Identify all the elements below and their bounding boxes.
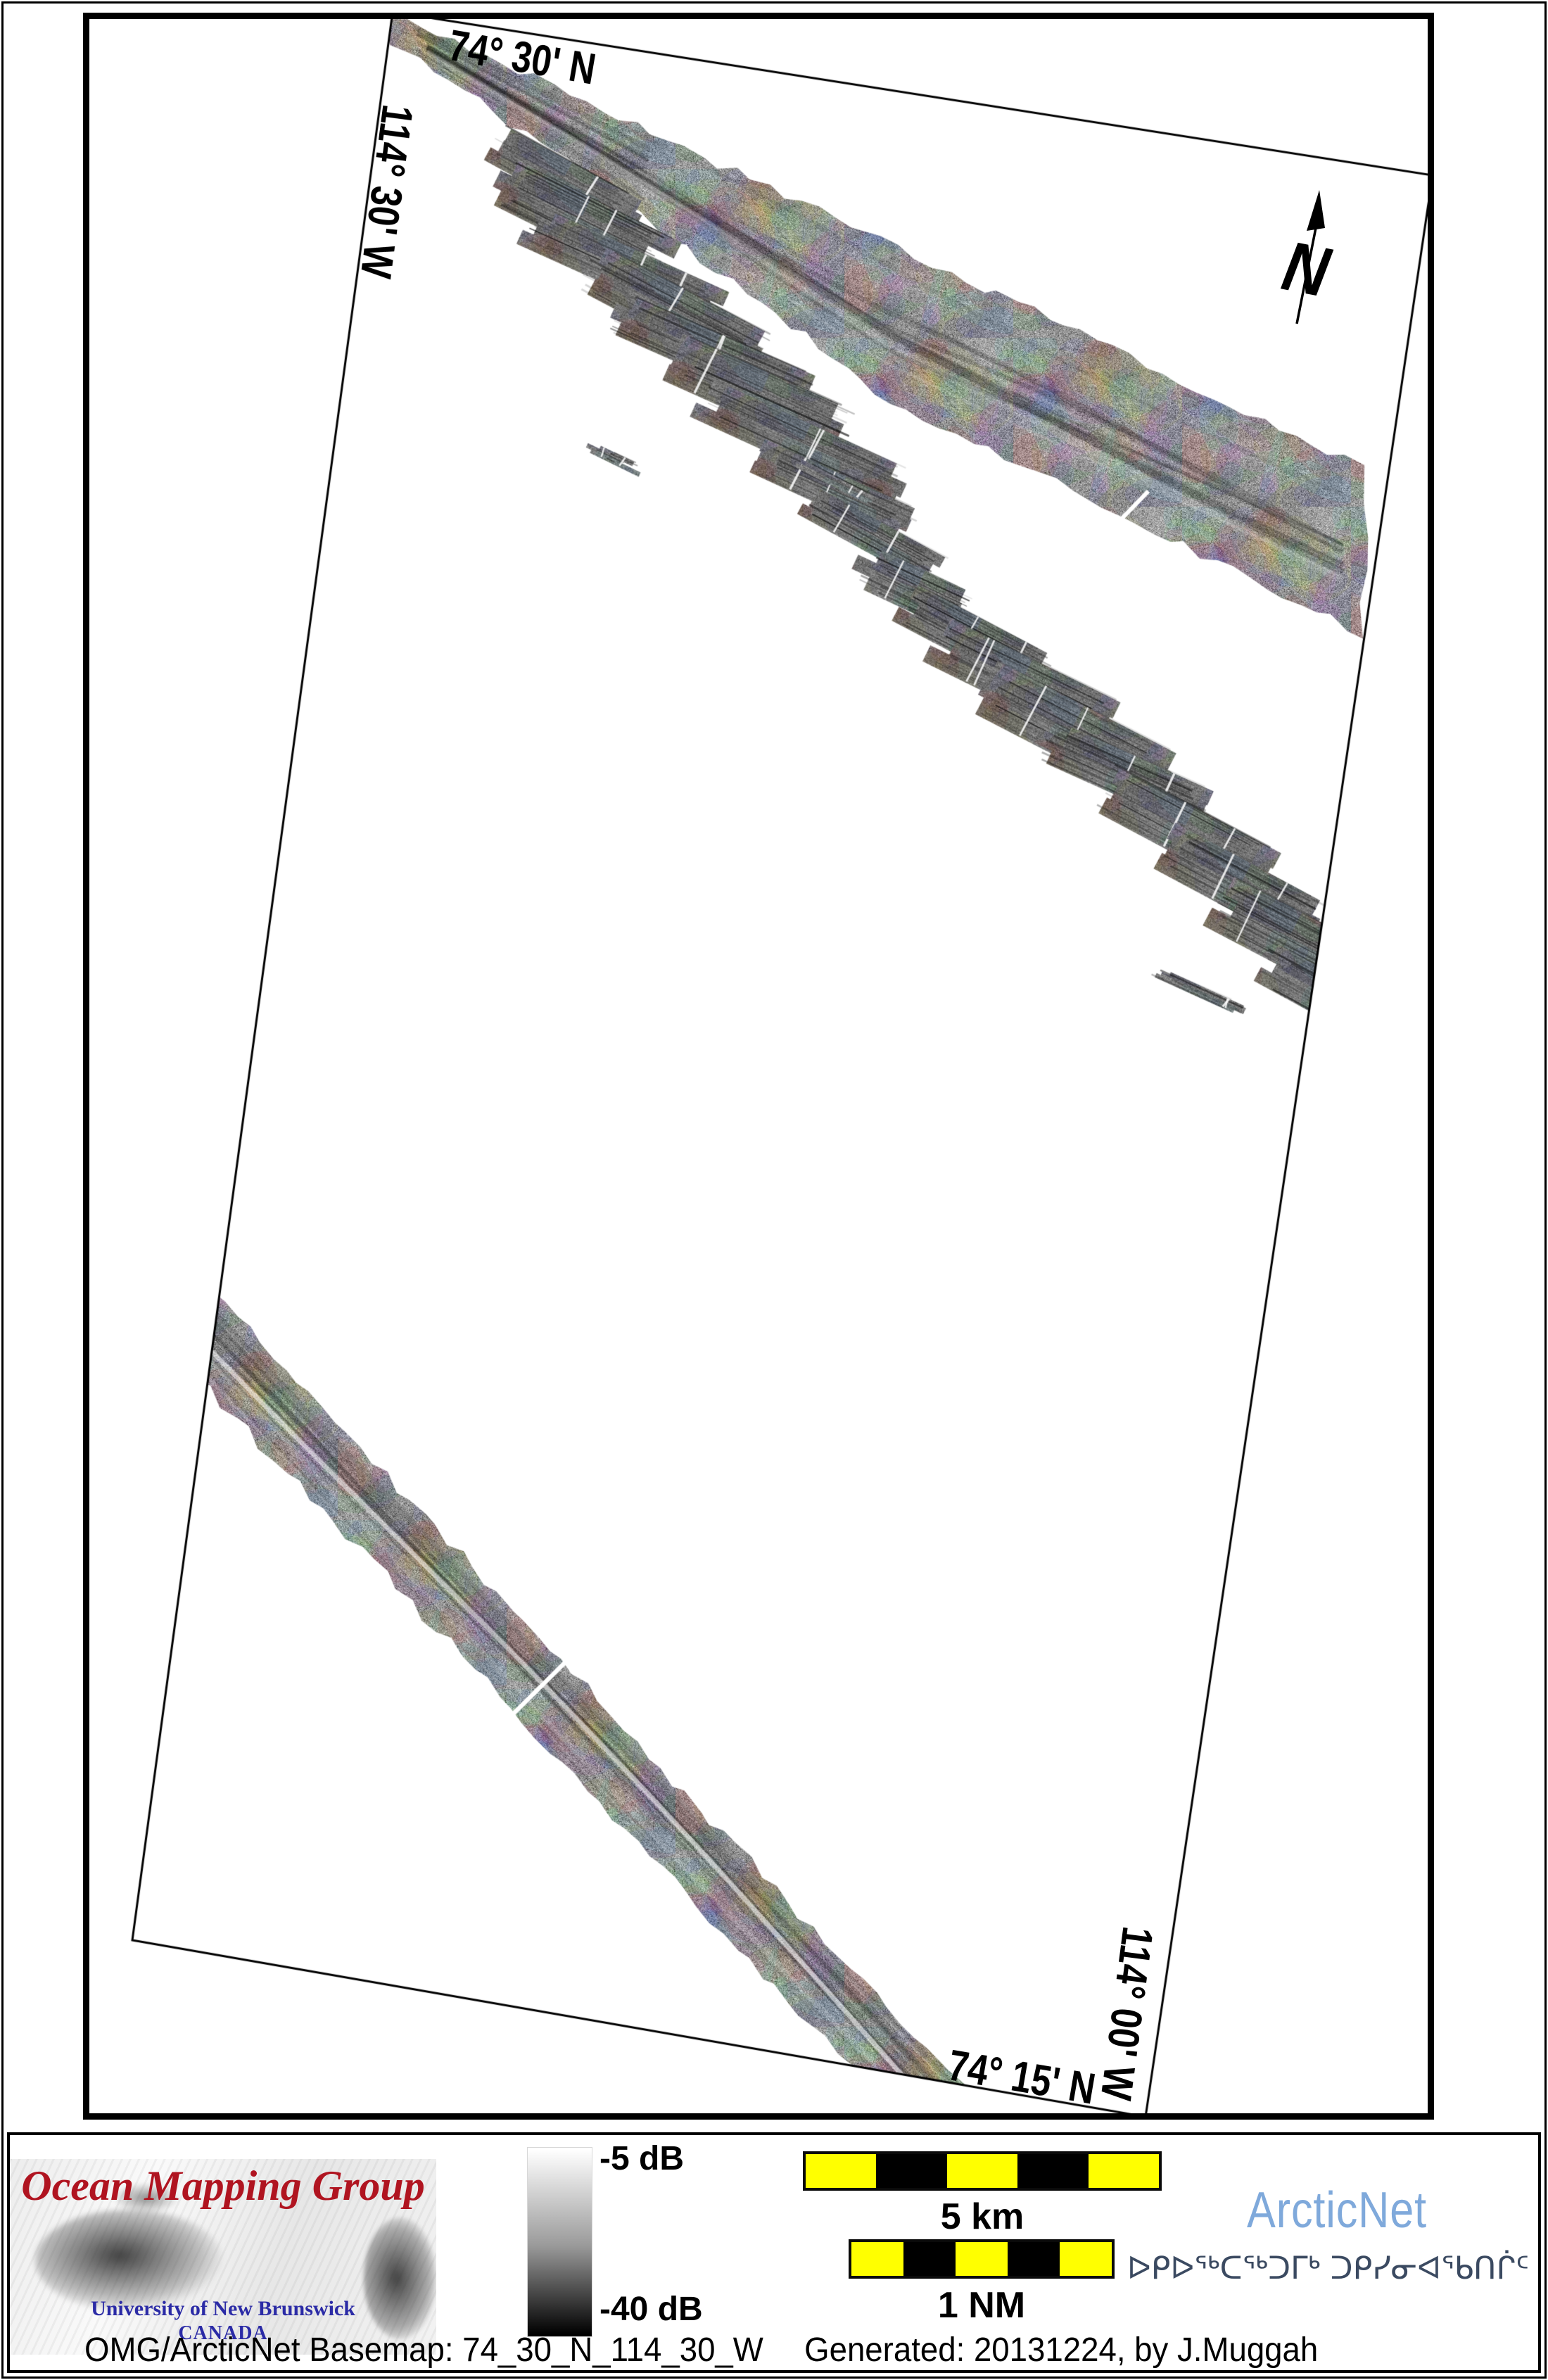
- map-frame: [83, 13, 1434, 2120]
- arcticnet-logo-name: ArcticNet: [1188, 2182, 1487, 2239]
- scalebar-segment: [903, 2242, 956, 2276]
- sonar-imagery-canvas: [89, 19, 1428, 2113]
- north-arrow-head: [1307, 190, 1325, 231]
- scalebar-1nm-label: 1 NM: [849, 2284, 1115, 2327]
- colorbar-min-label: -40 dB: [599, 2290, 703, 2329]
- caption-basemap-title: OMG/ArcticNet Basemap: 74_30_N_114_30_W: [84, 2331, 763, 2369]
- scalebar-segment: [1089, 2154, 1159, 2188]
- caption-bar: OMG/ArcticNet Basemap: 74_30_N_114_30_W …: [84, 2331, 1318, 2369]
- scalebar-segment: [876, 2154, 946, 2188]
- scalebar-segment: [947, 2154, 1017, 2188]
- scalebar-segment: [851, 2242, 903, 2276]
- omg-logo-title: Ocean Mapping Group: [10, 2162, 436, 2210]
- colorbar-max-label: -5 dB: [599, 2139, 684, 2178]
- omg-logo: Ocean Mapping Group University of New Br…: [10, 2159, 436, 2355]
- arcticnet-logo-inuktitut: ᐅᑭᐅᖅᑕᖅᑐᒥᒃ ᑐᑭᓯᓂᐊᖃᑎᒌᑦ: [1108, 2251, 1548, 2286]
- scalebar-5km: [803, 2151, 1162, 2191]
- scalebar-segment: [956, 2242, 1008, 2276]
- scalebar-segment: [1060, 2242, 1112, 2276]
- scalebar-segment: [1017, 2154, 1088, 2188]
- caption-generated: Generated: 20131224, by J.Muggah: [804, 2331, 1318, 2369]
- backscatter-colorbar: [527, 2147, 592, 2337]
- omg-logo-institution: University of New Brunswick: [10, 2297, 436, 2321]
- scalebar-1nm: [849, 2239, 1115, 2279]
- scalebar-segment: [1008, 2242, 1060, 2276]
- scalebar-segment: [806, 2154, 876, 2188]
- scalebar-5km-label: 5 km: [803, 2196, 1162, 2238]
